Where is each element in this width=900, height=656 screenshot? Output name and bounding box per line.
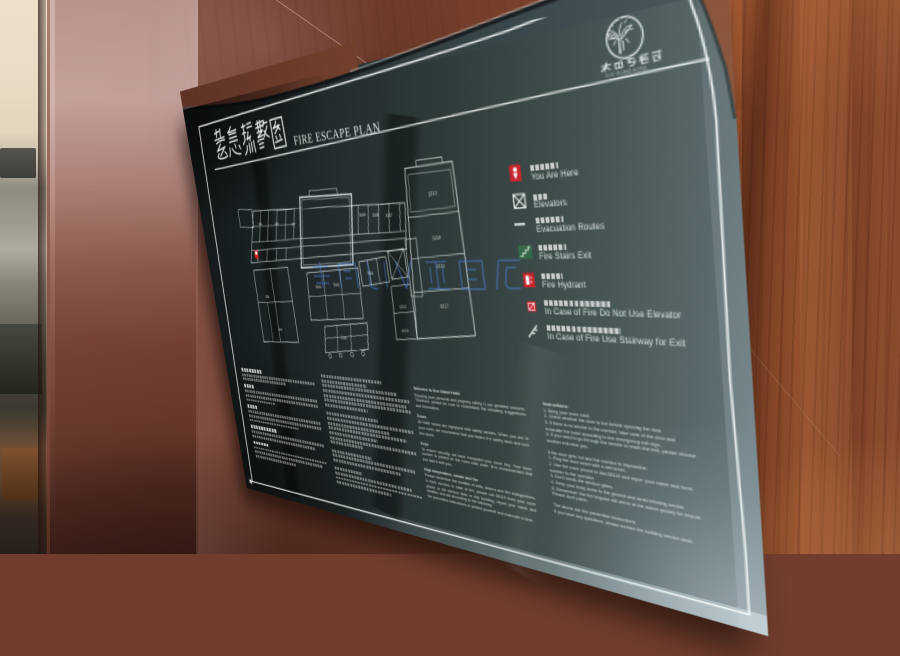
svg-text:305: 305: [274, 221, 279, 227]
svg-text:308: 308: [265, 294, 270, 299]
svg-text:3217: 3217: [440, 303, 450, 310]
svg-text:3309: 3309: [359, 212, 367, 218]
svg-text:3213: 3213: [428, 189, 438, 197]
svg-text:3307: 3307: [385, 212, 393, 219]
svg-text:307: 307: [291, 221, 296, 227]
svg-text:3308: 3308: [372, 212, 380, 219]
svg-text:3210: 3210: [401, 328, 409, 334]
svg-text:309: 309: [278, 327, 283, 332]
svg-text:3218: 3218: [432, 234, 442, 242]
svg-text:SUN ISLAND HOTEL: SUN ISLAND HOTEL: [605, 65, 650, 79]
svg-text:3101: 3101: [341, 335, 348, 341]
svg-text:301: 301: [258, 221, 263, 226]
svg-text:3212: 3212: [399, 304, 408, 310]
